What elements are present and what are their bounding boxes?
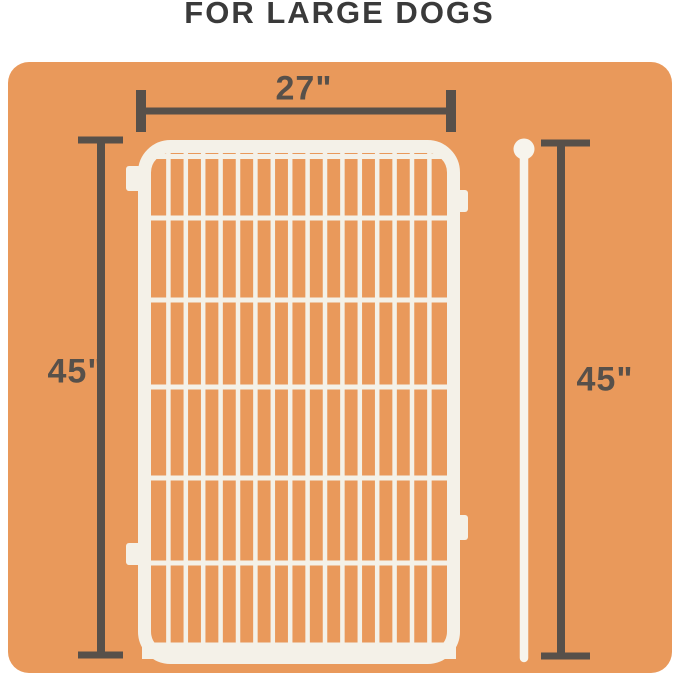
panel-connector-tabs [126,166,468,565]
page-title: FOR LARGE DOGS [0,0,679,30]
dimension-diagram [8,62,672,673]
panel-vertical-wires [168,153,429,646]
wire-panel-graphic [126,147,468,658]
height-dimension-label-left: 45" [48,353,105,392]
height-dimension-arrow-right [541,143,590,656]
rod-ball-top [514,139,535,160]
width-dimension-label: 27" [276,70,333,109]
orange-card-background: 27" 45" 45" [8,62,672,673]
panel-frame [145,147,454,658]
product-infographic: FOR LARGE DOGS [0,0,679,679]
ground-rod-graphic [514,139,535,659]
height-dimension-label-right: 45" [577,361,634,400]
panel-horizontal-rails [146,157,452,646]
height-dimension-arrow-left [78,140,123,655]
